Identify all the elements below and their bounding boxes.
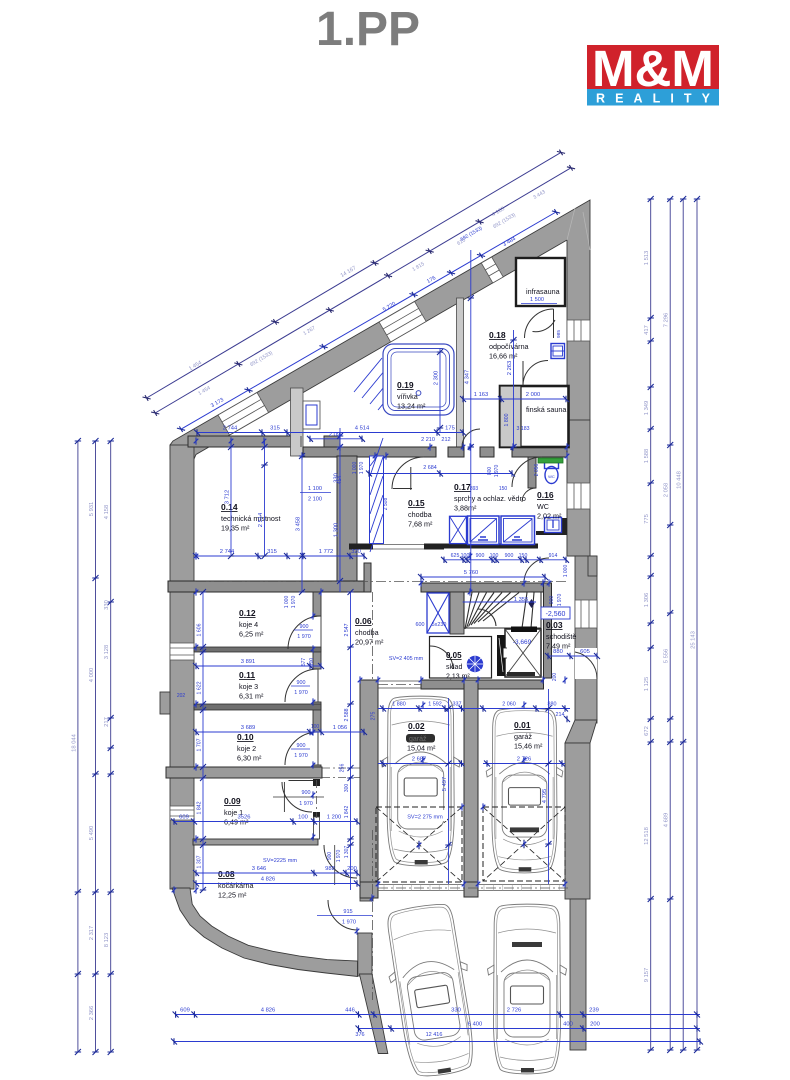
svg-text:WC: WC xyxy=(537,502,549,511)
svg-text:900: 900 xyxy=(549,596,555,605)
svg-text:1 842: 1 842 xyxy=(197,801,203,814)
svg-text:-2,560: -2,560 xyxy=(546,611,566,618)
svg-text:900: 900 xyxy=(300,624,309,630)
svg-text:0.02: 0.02 xyxy=(408,721,425,731)
svg-text:M&M: M&M xyxy=(592,40,714,97)
svg-text:infrasauna: infrasauna xyxy=(526,287,560,296)
svg-text:2 366: 2 366 xyxy=(89,1006,95,1021)
svg-text:6,31 m²: 6,31 m² xyxy=(239,692,264,701)
svg-text:1 200: 1 200 xyxy=(327,815,342,821)
svg-text:1 125: 1 125 xyxy=(644,677,650,692)
svg-text:4 514: 4 514 xyxy=(355,426,370,432)
svg-text:2 210: 2 210 xyxy=(421,437,435,443)
svg-text:150: 150 xyxy=(499,486,508,492)
svg-text:454: 454 xyxy=(337,476,343,485)
svg-text:6,30 m²: 6,30 m² xyxy=(237,754,262,763)
svg-text:256: 256 xyxy=(340,764,346,773)
svg-text:4 347: 4 347 xyxy=(464,370,470,385)
svg-text:1 622: 1 622 xyxy=(197,681,203,694)
svg-text:2 547: 2 547 xyxy=(344,623,350,636)
svg-text:900: 900 xyxy=(297,680,306,686)
svg-text:5 931: 5 931 xyxy=(89,502,95,517)
svg-text:1 970: 1 970 xyxy=(342,920,356,926)
svg-text:100: 100 xyxy=(311,724,320,730)
svg-text:6 400: 6 400 xyxy=(468,1022,483,1028)
svg-text:12 518: 12 518 xyxy=(644,827,650,845)
svg-text:2 056: 2 056 xyxy=(534,464,540,477)
svg-text:1 307: 1 307 xyxy=(344,846,350,859)
svg-text:2 514: 2 514 xyxy=(258,512,264,527)
svg-text:2 684: 2 684 xyxy=(423,465,437,471)
svg-text:2 000: 2 000 xyxy=(526,392,541,398)
svg-text:315: 315 xyxy=(270,426,280,432)
svg-text:1 880: 1 880 xyxy=(392,702,406,708)
svg-text:672: 672 xyxy=(644,726,650,736)
svg-text:5 497: 5 497 xyxy=(442,777,448,792)
svg-text:1 588: 1 588 xyxy=(644,449,650,464)
svg-text:417: 417 xyxy=(644,325,650,335)
svg-text:2 300: 2 300 xyxy=(434,371,440,386)
svg-text:koje 3: koje 3 xyxy=(239,682,258,691)
svg-text:technická místnost: technická místnost xyxy=(221,514,281,523)
svg-text:0.08: 0.08 xyxy=(218,869,235,879)
svg-text:2 744: 2 744 xyxy=(223,426,238,432)
svg-text:2 588: 2 588 xyxy=(344,708,350,721)
svg-text:1 970: 1 970 xyxy=(557,594,563,607)
svg-text:0.18: 0.18 xyxy=(489,330,506,340)
svg-text:3 712: 3 712 xyxy=(225,490,231,505)
svg-text:3 646: 3 646 xyxy=(252,866,267,872)
svg-text:0.10: 0.10 xyxy=(237,732,254,742)
svg-text:19,35 m²: 19,35 m² xyxy=(221,524,250,533)
svg-text:2 060: 2 060 xyxy=(502,702,516,708)
svg-text:finská sauna: finská sauna xyxy=(526,405,566,414)
svg-text:175: 175 xyxy=(445,426,455,432)
svg-text:1 970: 1 970 xyxy=(359,462,365,475)
svg-text:605: 605 xyxy=(580,649,590,655)
svg-text:900: 900 xyxy=(302,790,311,796)
svg-text:0.17: 0.17 xyxy=(454,482,471,492)
svg-text:vířivka: vířivka xyxy=(397,392,418,401)
svg-text:0.01: 0.01 xyxy=(514,720,531,730)
svg-text:100: 100 xyxy=(298,815,308,821)
svg-text:900: 900 xyxy=(297,743,306,749)
svg-text:800: 800 xyxy=(487,467,493,476)
svg-text:2 508: 2 508 xyxy=(383,498,389,511)
svg-text:koje 2: koje 2 xyxy=(237,744,256,753)
svg-text:914: 914 xyxy=(549,553,558,559)
svg-text:13,24 m²: 13,24 m² xyxy=(397,402,426,411)
svg-text:1 970: 1 970 xyxy=(294,753,308,759)
svg-text:1 842: 1 842 xyxy=(344,806,350,819)
svg-text:5 556: 5 556 xyxy=(664,649,670,664)
svg-text:SV=2 405 mm: SV=2 405 mm xyxy=(389,656,424,662)
svg-text:-3,669: -3,669 xyxy=(513,639,532,646)
svg-text:1 163: 1 163 xyxy=(474,392,489,398)
svg-text:315: 315 xyxy=(267,549,277,555)
svg-text:900: 900 xyxy=(476,553,485,559)
svg-text:12 416: 12 416 xyxy=(426,1032,443,1038)
svg-text:1 307: 1 307 xyxy=(197,855,203,868)
svg-text:900: 900 xyxy=(505,553,514,559)
svg-text:239: 239 xyxy=(589,1008,599,1014)
svg-text:7,68 m²: 7,68 m² xyxy=(408,520,433,529)
svg-text:900: 900 xyxy=(327,852,333,861)
svg-text:5 490: 5 490 xyxy=(89,826,95,841)
svg-text:202: 202 xyxy=(177,693,186,699)
svg-text:446: 446 xyxy=(345,1008,355,1014)
svg-text:376: 376 xyxy=(355,1032,364,1038)
svg-text:3526: 3526 xyxy=(238,815,251,821)
svg-text:893: 893 xyxy=(470,486,479,492)
svg-text:20,97 m²: 20,97 m² xyxy=(355,638,384,647)
svg-text:100: 100 xyxy=(490,553,499,559)
svg-text:1 970: 1 970 xyxy=(494,465,500,478)
svg-text:15,04 m²: 15,04 m² xyxy=(407,744,436,753)
svg-text:0.06: 0.06 xyxy=(355,616,372,626)
svg-text:8 123: 8 123 xyxy=(104,933,110,948)
svg-text:garáž: garáž xyxy=(409,736,427,743)
svg-text:15,46 m²: 15,46 m² xyxy=(514,742,543,751)
svg-text:217: 217 xyxy=(104,717,110,727)
svg-text:0.16: 0.16 xyxy=(537,490,554,500)
svg-text:200: 200 xyxy=(347,866,357,872)
svg-text:odpočívárna: odpočívárna xyxy=(489,342,529,351)
svg-text:275: 275 xyxy=(371,712,377,721)
svg-text:4 826: 4 826 xyxy=(261,877,276,883)
svg-text:2 317: 2 317 xyxy=(89,926,95,941)
svg-text:kočárkárna: kočárkárna xyxy=(218,881,254,890)
svg-text:1 000: 1 000 xyxy=(284,596,290,609)
svg-text:5x230: 5x230 xyxy=(432,622,447,628)
svg-text:3 183: 3 183 xyxy=(517,426,530,432)
svg-text:0.09: 0.09 xyxy=(224,796,241,806)
svg-text:1 056: 1 056 xyxy=(333,725,348,731)
svg-text:214: 214 xyxy=(556,712,565,718)
svg-text:2 726: 2 726 xyxy=(507,1008,522,1014)
svg-text:18 044: 18 044 xyxy=(71,733,77,752)
svg-text:609: 609 xyxy=(179,815,189,821)
svg-text:0.12: 0.12 xyxy=(239,608,256,618)
svg-text:12,25 m²: 12,25 m² xyxy=(218,891,247,900)
svg-text:1 772: 1 772 xyxy=(319,549,334,555)
svg-text:0.11: 0.11 xyxy=(239,670,255,680)
svg-text:WC: WC xyxy=(548,474,555,479)
svg-text:4 795: 4 795 xyxy=(542,789,548,804)
svg-text:0.19: 0.19 xyxy=(397,380,414,390)
svg-text:4 158: 4 158 xyxy=(104,505,110,520)
svg-text:chodba: chodba xyxy=(408,510,432,519)
svg-text:3,88m²: 3,88m² xyxy=(454,504,477,513)
svg-text:1 970: 1 970 xyxy=(297,634,311,640)
svg-text:775: 775 xyxy=(644,514,650,524)
svg-text:337: 337 xyxy=(453,702,462,708)
svg-text:1 970: 1 970 xyxy=(299,801,313,807)
svg-text:100: 100 xyxy=(309,658,315,667)
svg-text:6,25 m²: 6,25 m² xyxy=(239,630,264,639)
svg-text:2 100: 2 100 xyxy=(308,497,322,503)
svg-text:1 970: 1 970 xyxy=(294,690,308,696)
svg-text:212: 212 xyxy=(441,437,450,443)
svg-text:2 263: 2 263 xyxy=(507,361,513,376)
svg-text:garáž: garáž xyxy=(514,732,532,741)
svg-text:400: 400 xyxy=(563,1022,573,1028)
svg-text:7 296: 7 296 xyxy=(664,313,670,328)
svg-text:4 689: 4 689 xyxy=(664,813,670,828)
svg-text:2 058: 2 058 xyxy=(664,483,670,498)
svg-text:2,13 m²: 2,13 m² xyxy=(446,674,470,681)
svg-text:1 306: 1 306 xyxy=(644,593,650,608)
svg-text:985: 985 xyxy=(556,330,562,338)
svg-text:3 891: 3 891 xyxy=(241,659,256,665)
svg-text:sklad: sklad xyxy=(446,664,462,671)
svg-text:3 458: 3 458 xyxy=(296,517,302,532)
svg-text:chodba: chodba xyxy=(355,628,379,637)
svg-text:9 157: 9 157 xyxy=(644,968,650,983)
svg-text:600: 600 xyxy=(416,622,425,628)
svg-text:schodiště: schodiště xyxy=(546,632,576,641)
svg-text:150: 150 xyxy=(519,553,528,559)
svg-text:4 000: 4 000 xyxy=(89,668,95,683)
svg-text:3 128: 3 128 xyxy=(104,645,110,660)
svg-text:1 300: 1 300 xyxy=(334,523,340,538)
svg-text:1 500: 1 500 xyxy=(530,297,544,303)
svg-text:1 000: 1 000 xyxy=(352,462,358,475)
svg-text:625: 625 xyxy=(451,553,460,559)
svg-text:1 970: 1 970 xyxy=(291,596,297,609)
svg-text:200: 200 xyxy=(552,673,558,682)
svg-text:200: 200 xyxy=(590,1022,600,1028)
svg-text:577: 577 xyxy=(301,658,307,667)
svg-text:1 100: 1 100 xyxy=(308,486,322,492)
svg-text:1 707: 1 707 xyxy=(197,738,203,751)
svg-text:1 349: 1 349 xyxy=(644,401,650,416)
svg-text:330: 330 xyxy=(104,600,110,610)
svg-text:1 606: 1 606 xyxy=(197,623,203,636)
svg-text:10 448: 10 448 xyxy=(677,471,683,489)
svg-text:300: 300 xyxy=(344,784,350,793)
svg-text:1 970: 1 970 xyxy=(336,850,342,863)
svg-text:2,02 m²: 2,02 m² xyxy=(537,512,562,521)
svg-text:SV=2 275 mm: SV=2 275 mm xyxy=(407,815,443,821)
svg-text:3 689: 3 689 xyxy=(241,725,256,731)
svg-text:4 826: 4 826 xyxy=(261,1008,276,1014)
svg-text:sprchy a ochlaz. vědro: sprchy a ochlaz. vědro xyxy=(454,494,526,503)
svg-text:0.03: 0.03 xyxy=(546,620,563,630)
svg-text:609: 609 xyxy=(180,1008,190,1014)
svg-text:1.PP: 1.PP xyxy=(316,3,420,56)
svg-text:988: 988 xyxy=(325,866,335,872)
svg-text:1 592: 1 592 xyxy=(428,702,442,708)
svg-text:1 000: 1 000 xyxy=(563,565,569,578)
svg-text:320: 320 xyxy=(351,549,361,555)
svg-text:1 800: 1 800 xyxy=(504,413,510,426)
svg-text:koje 4: koje 4 xyxy=(239,620,258,629)
svg-text:25 143: 25 143 xyxy=(691,631,697,649)
svg-text:0.15: 0.15 xyxy=(408,498,425,508)
svg-text:330: 330 xyxy=(451,1008,461,1014)
svg-text:SV=2225 mm: SV=2225 mm xyxy=(263,858,297,864)
svg-text:880: 880 xyxy=(553,649,563,655)
svg-text:915: 915 xyxy=(343,909,352,915)
svg-text:0.05: 0.05 xyxy=(446,651,462,660)
svg-text:1 513: 1 513 xyxy=(644,251,650,266)
